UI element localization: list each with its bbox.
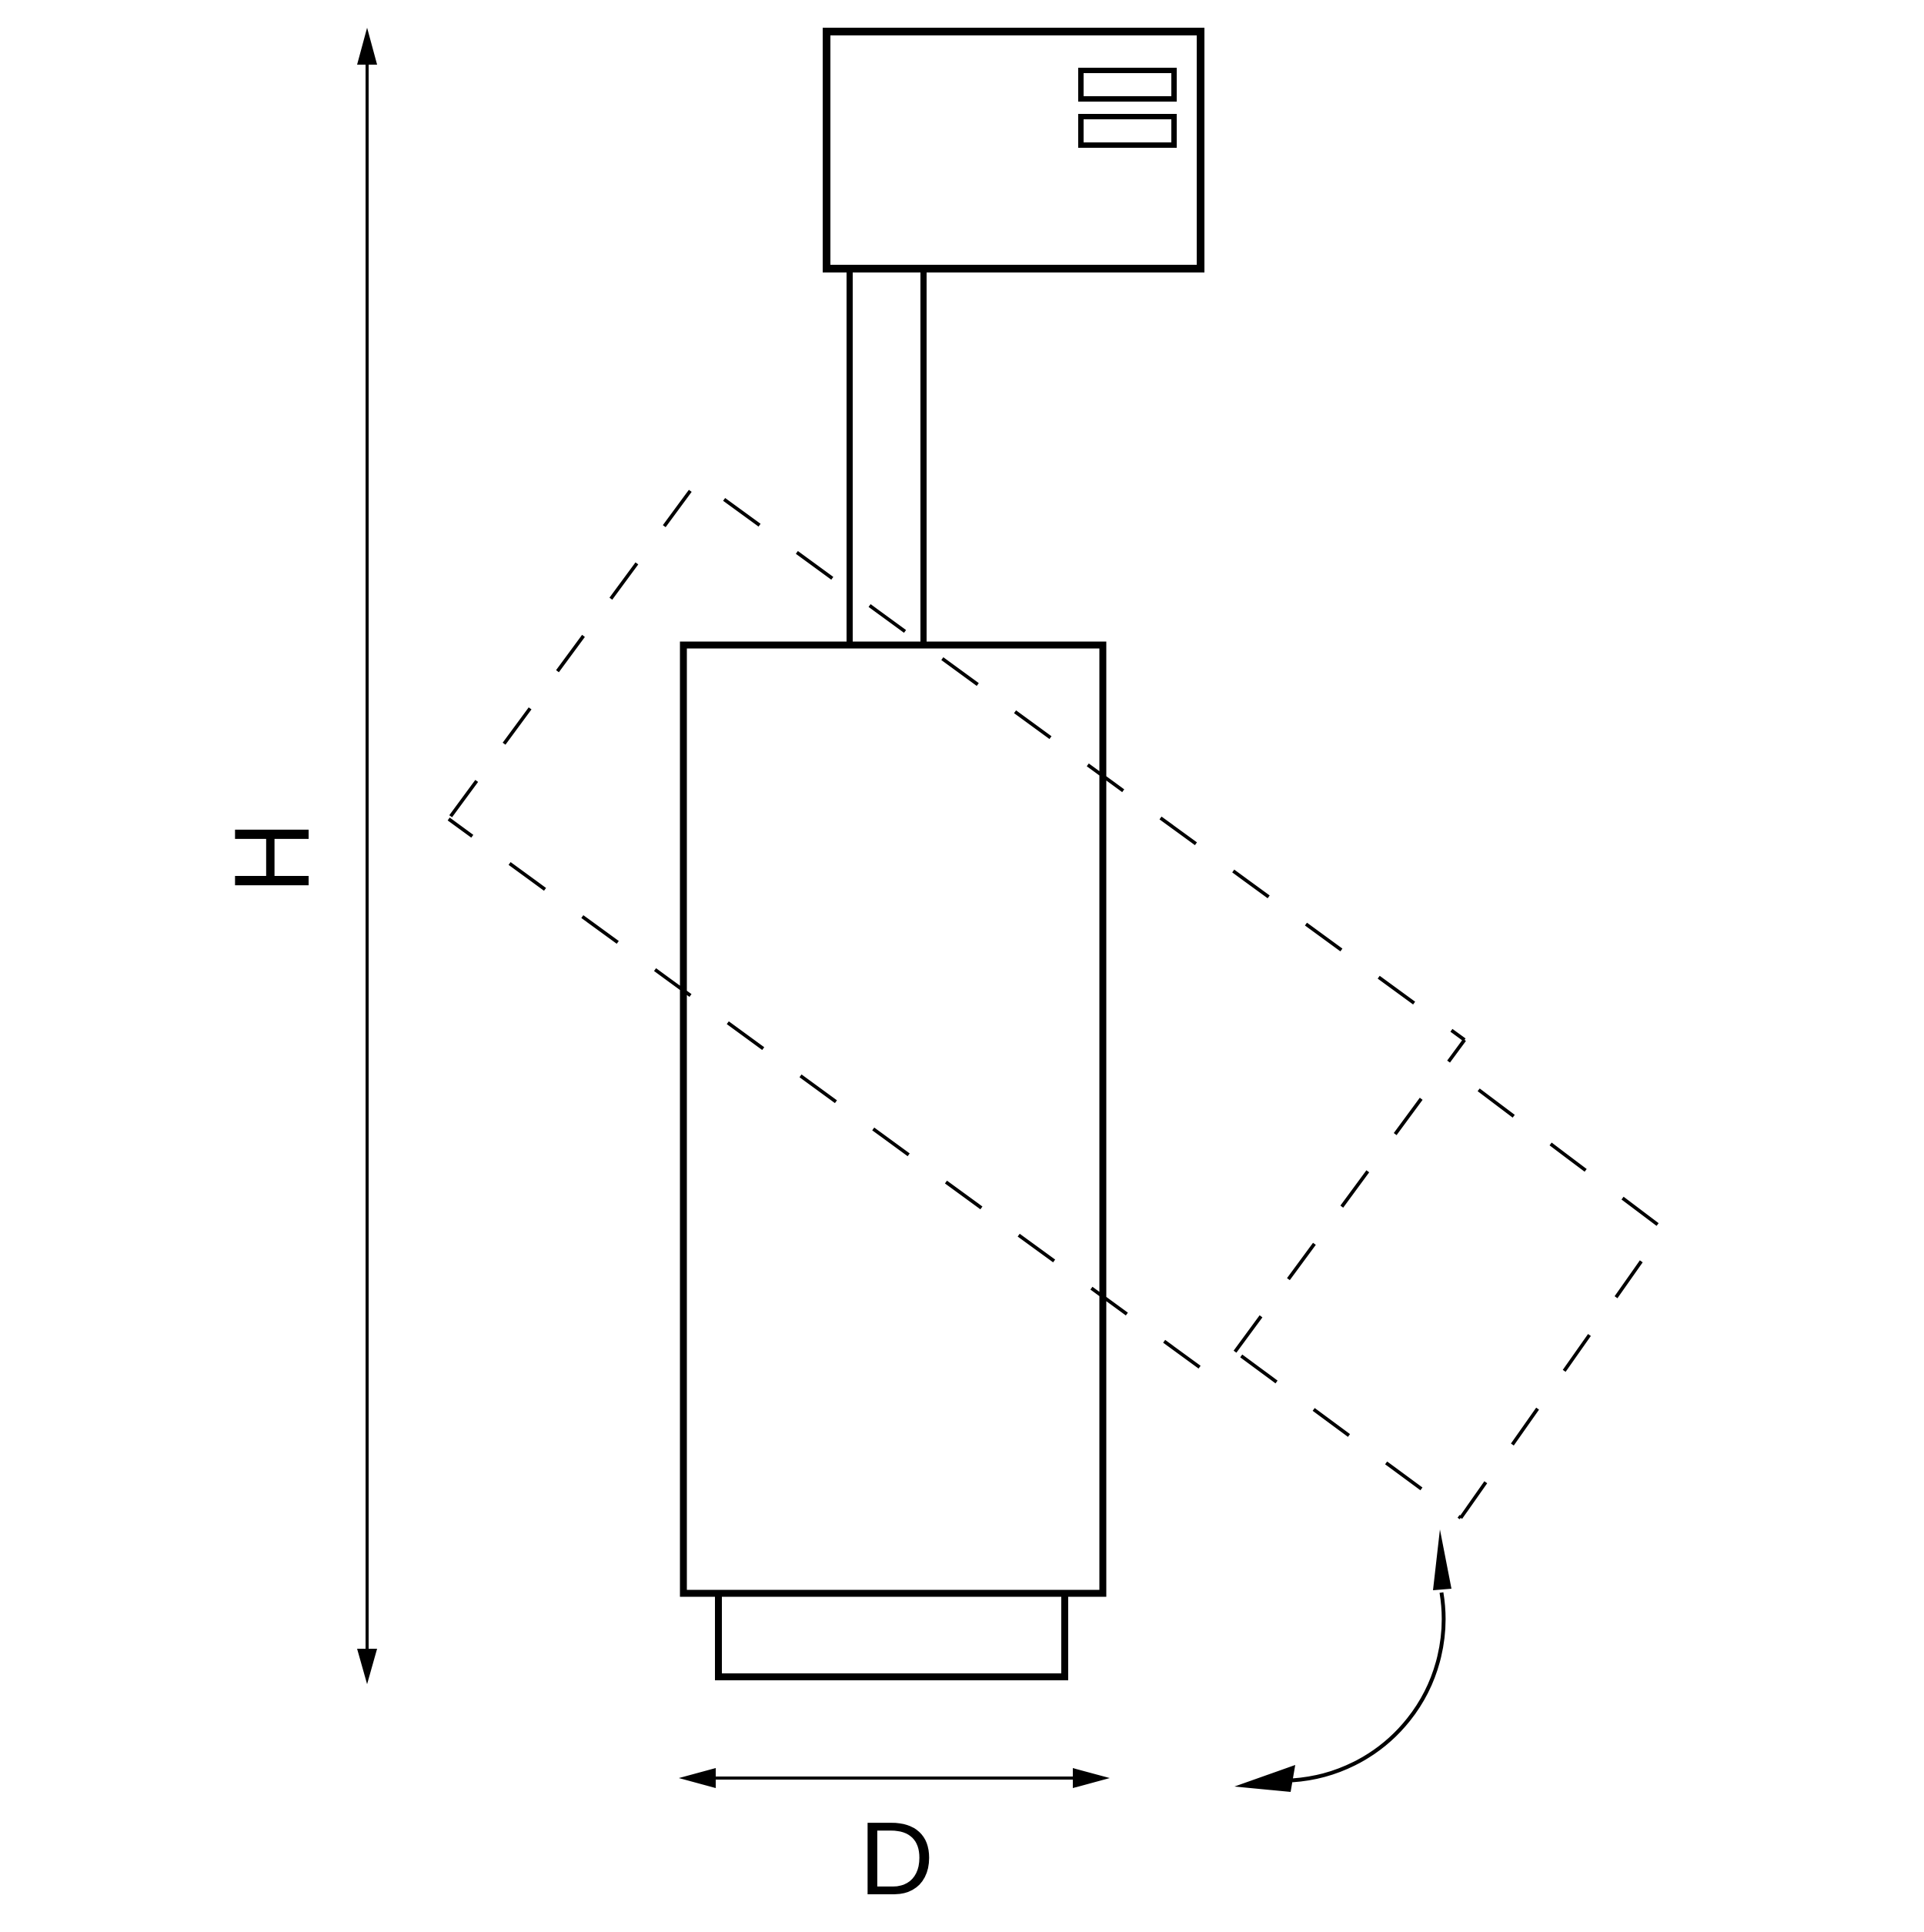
svg-text:H: H bbox=[212, 821, 332, 893]
svg-text:D: D bbox=[859, 1800, 934, 1917]
